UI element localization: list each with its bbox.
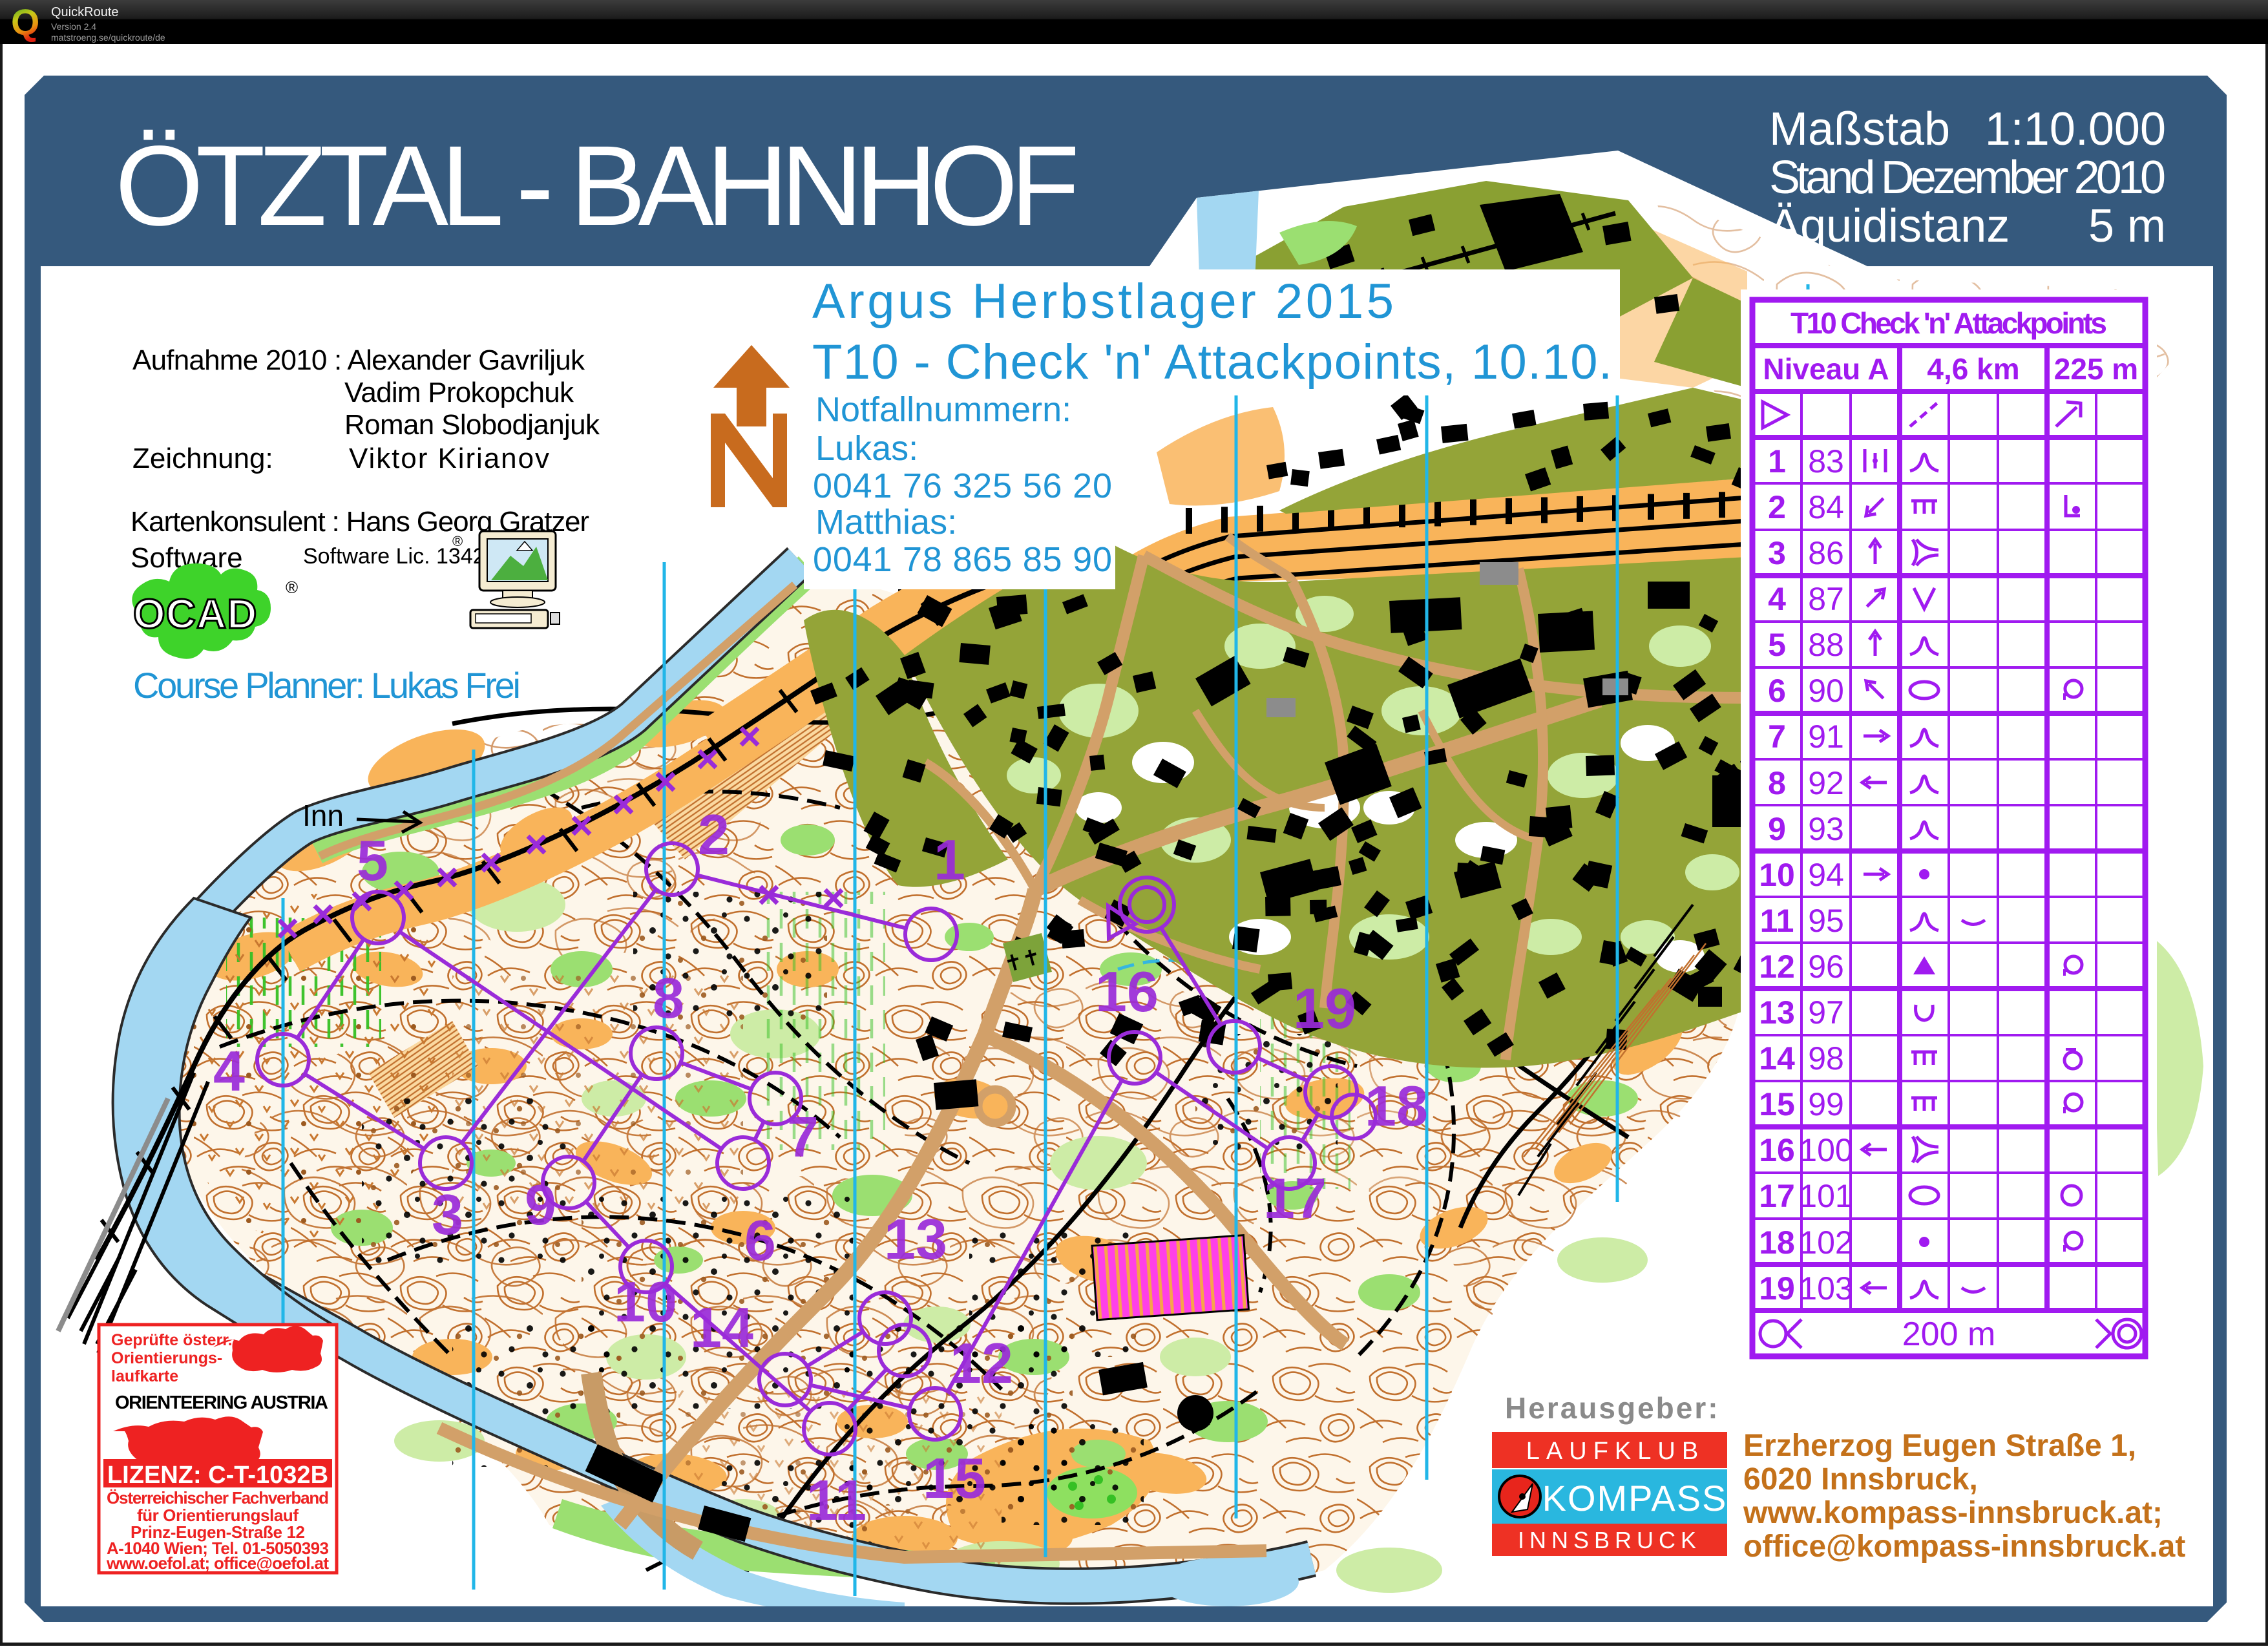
svg-text:5 m: 5 m xyxy=(2088,200,2166,252)
svg-text:3: 3 xyxy=(1768,535,1786,571)
svg-text:Geprüfte österr.: Geprüfte österr. xyxy=(111,1331,233,1349)
svg-text:17: 17 xyxy=(1759,1178,1795,1214)
svg-text:Matthias:: Matthias: xyxy=(815,503,957,541)
svg-text:OCAD: OCAD xyxy=(133,591,257,637)
svg-text:98: 98 xyxy=(1808,1040,1844,1077)
svg-text:Orientierungs-: Orientierungs- xyxy=(111,1349,222,1367)
svg-text:7: 7 xyxy=(1768,719,1786,755)
svg-text:6: 6 xyxy=(744,1208,776,1272)
svg-text:12: 12 xyxy=(1759,949,1795,985)
svg-text:83: 83 xyxy=(1808,443,1844,479)
svg-text:90: 90 xyxy=(1808,673,1844,709)
svg-text:8: 8 xyxy=(1768,765,1786,801)
svg-text:5: 5 xyxy=(1768,627,1786,663)
svg-text:200 m: 200 m xyxy=(1902,1316,1996,1353)
svg-text:87: 87 xyxy=(1808,581,1844,617)
svg-text:11: 11 xyxy=(806,1468,866,1532)
svg-text:225 m: 225 m xyxy=(2054,352,2138,386)
svg-text:Österreichischer Fachverband: Österreichischer Fachverband xyxy=(107,1488,329,1507)
svg-text:Viktor Kirianov: Viktor Kirianov xyxy=(349,443,549,474)
svg-text:4: 4 xyxy=(213,1039,245,1103)
svg-text:19: 19 xyxy=(1759,1270,1795,1307)
svg-text:Argus Herbstlager 2015: Argus Herbstlager 2015 xyxy=(812,274,1394,329)
svg-text:14: 14 xyxy=(690,1296,753,1360)
svg-text:92: 92 xyxy=(1808,765,1844,801)
svg-text:100: 100 xyxy=(1799,1132,1853,1168)
svg-text:www.kompass-innsbruck.at;: www.kompass-innsbruck.at; xyxy=(1743,1496,2163,1530)
svg-text:103: 103 xyxy=(1799,1270,1853,1307)
svg-text:KOMPASS: KOMPASS xyxy=(1542,1478,1728,1518)
svg-text:11: 11 xyxy=(1760,903,1794,939)
svg-text:1:10.000: 1:10.000 xyxy=(1985,103,2166,155)
svg-text:93: 93 xyxy=(1808,811,1844,847)
svg-text:5: 5 xyxy=(357,828,388,892)
svg-text:4,6 km: 4,6 km xyxy=(1927,352,2019,386)
svg-text:95: 95 xyxy=(1808,903,1844,939)
svg-text:Roman Slobodjanjuk: Roman Slobodjanjuk xyxy=(344,409,600,441)
svg-text:17: 17 xyxy=(1263,1166,1327,1230)
svg-text:99: 99 xyxy=(1808,1086,1844,1122)
svg-text:2: 2 xyxy=(698,803,730,867)
svg-text:Aufnahme 2010 : Alexander Gavr: Aufnahme 2010 : Alexander Gavriljuk xyxy=(132,344,585,376)
svg-text:3: 3 xyxy=(432,1182,463,1246)
svg-text:Erzherzog Eugen Straße 1,: Erzherzog Eugen Straße 1, xyxy=(1743,1429,2136,1463)
svg-text:Notfallnummern:: Notfallnummern: xyxy=(815,390,1071,429)
svg-text:Niveau A: Niveau A xyxy=(1763,352,1889,386)
svg-text:Zeichnung:: Zeichnung: xyxy=(132,443,273,474)
svg-text:1: 1 xyxy=(934,828,965,892)
svg-text:101: 101 xyxy=(1799,1178,1853,1214)
svg-text:18: 18 xyxy=(1759,1224,1795,1261)
svg-text:INNSBRUCK: INNSBRUCK xyxy=(1518,1527,1701,1553)
svg-text:9: 9 xyxy=(525,1173,556,1237)
svg-text:ORIENTEERING AUSTRIA: ORIENTEERING AUSTRIA xyxy=(115,1392,328,1413)
svg-text:Herausgeber:: Herausgeber: xyxy=(1505,1391,1720,1425)
svg-text:Maßstab: Maßstab xyxy=(1769,103,1950,155)
svg-text:T10 Check 'n' Attackpoints: T10 Check 'n' Attackpoints xyxy=(1790,306,2107,340)
svg-text:Lukas:: Lukas: xyxy=(815,429,918,468)
svg-text:102: 102 xyxy=(1799,1224,1853,1261)
svg-text:0041 78 865 85 90: 0041 78 865 85 90 xyxy=(813,540,1112,579)
svg-text:2: 2 xyxy=(1768,489,1786,525)
svg-text:Course Planner: Lukas Frei: Course Planner: Lukas Frei xyxy=(133,665,521,706)
svg-text:LIZENZ: C-T-1032B: LIZENZ: C-T-1032B xyxy=(107,1462,328,1489)
svg-text:office@kompass-innsbruck.at: office@kompass-innsbruck.at xyxy=(1743,1529,2185,1564)
svg-text:ÖTZTAL - BAHNHOF: ÖTZTAL - BAHNHOF xyxy=(115,123,1082,249)
svg-text:12: 12 xyxy=(950,1331,1013,1395)
svg-text:LAUFKLUB: LAUFKLUB xyxy=(1526,1438,1705,1465)
svg-text:97: 97 xyxy=(1808,994,1844,1031)
svg-text:19: 19 xyxy=(1293,976,1356,1040)
svg-text:7: 7 xyxy=(787,1105,819,1169)
svg-text:16: 16 xyxy=(1095,960,1159,1024)
svg-text:Vadim Prokopchuk: Vadim Prokopchuk xyxy=(344,377,574,408)
svg-text:Stand Dezember 2010: Stand Dezember 2010 xyxy=(1769,152,2166,204)
svg-text:laufkarte: laufkarte xyxy=(111,1367,178,1385)
svg-text:14: 14 xyxy=(1759,1040,1795,1077)
svg-text:Inn: Inn xyxy=(302,799,344,832)
svg-text:Version 2.4: Version 2.4 xyxy=(51,21,96,32)
svg-text:4: 4 xyxy=(1768,581,1786,617)
svg-text:matstroeng.se/quickroute/de: matstroeng.se/quickroute/de xyxy=(51,32,165,43)
svg-text:®: ® xyxy=(286,578,298,597)
svg-text:18: 18 xyxy=(1365,1074,1428,1138)
svg-text:Äquidistanz: Äquidistanz xyxy=(1769,200,2010,252)
svg-text:QuickRoute: QuickRoute xyxy=(51,5,119,19)
svg-text:1: 1 xyxy=(1768,443,1786,479)
svg-text:0041 76 325 56 20: 0041 76 325 56 20 xyxy=(813,467,1112,505)
svg-text:Q: Q xyxy=(11,2,39,43)
svg-text:®: ® xyxy=(452,533,463,549)
svg-text:9: 9 xyxy=(1768,811,1786,847)
svg-text:88: 88 xyxy=(1808,627,1844,663)
svg-text:16: 16 xyxy=(1759,1132,1795,1168)
svg-text:91: 91 xyxy=(1808,719,1844,755)
svg-text:13: 13 xyxy=(884,1207,947,1271)
svg-text:15: 15 xyxy=(1759,1086,1795,1122)
svg-text:96: 96 xyxy=(1808,949,1844,985)
svg-text:10: 10 xyxy=(614,1270,677,1334)
svg-text:8: 8 xyxy=(653,966,684,1030)
svg-text:6: 6 xyxy=(1768,673,1786,709)
svg-text:94: 94 xyxy=(1808,857,1844,893)
svg-text:10: 10 xyxy=(1759,857,1795,893)
svg-text:13: 13 xyxy=(1759,994,1795,1031)
svg-text:15: 15 xyxy=(923,1446,986,1510)
svg-text:6020 Innsbruck,: 6020 Innsbruck, xyxy=(1743,1462,1978,1497)
svg-text:www.oefol.at; office@oefol.at: www.oefol.at; office@oefol.at xyxy=(106,1553,329,1573)
svg-text:86: 86 xyxy=(1808,535,1844,571)
svg-text:T10 - Check 'n' Attackpoints,: T10 - Check 'n' Attackpoints, 10.10. xyxy=(812,335,1612,390)
svg-text:84: 84 xyxy=(1808,489,1844,525)
